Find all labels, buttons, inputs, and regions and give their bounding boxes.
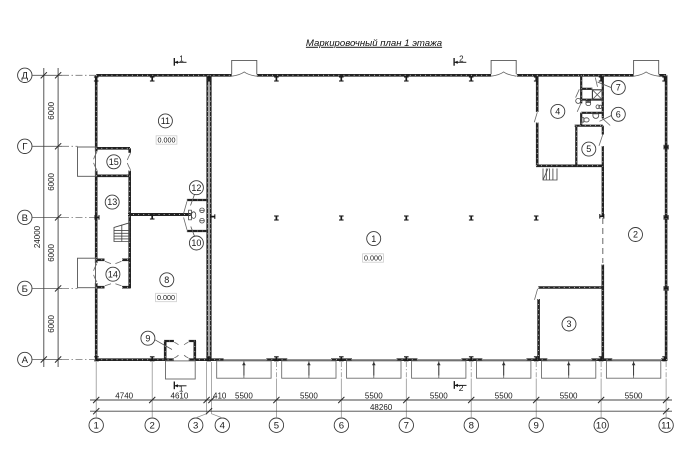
svg-text:4: 4 (555, 107, 560, 117)
svg-text:1: 1 (179, 55, 184, 64)
svg-text:5500: 5500 (235, 391, 253, 400)
svg-text:В: В (22, 213, 28, 224)
svg-text:24000: 24000 (33, 225, 42, 248)
svg-text:Д: Д (22, 71, 29, 82)
svg-text:11: 11 (661, 421, 671, 432)
svg-text:А: А (22, 355, 29, 366)
svg-text:5500: 5500 (430, 391, 448, 400)
svg-text:1: 1 (94, 421, 99, 432)
svg-text:5500: 5500 (300, 391, 318, 400)
svg-text:6000: 6000 (47, 243, 56, 261)
svg-text:48260: 48260 (370, 403, 393, 412)
svg-text:12: 12 (191, 183, 201, 193)
svg-text:5500: 5500 (560, 391, 578, 400)
svg-text:6000: 6000 (47, 172, 56, 190)
svg-text:0.000: 0.000 (157, 293, 175, 302)
svg-text:3: 3 (193, 421, 198, 432)
svg-text:14: 14 (108, 269, 118, 279)
svg-text:10: 10 (596, 421, 607, 432)
svg-text:410: 410 (213, 391, 227, 400)
svg-text:5500: 5500 (625, 391, 643, 400)
svg-text:2: 2 (633, 230, 638, 240)
svg-text:Г: Г (22, 142, 28, 153)
svg-text:5: 5 (586, 144, 591, 154)
svg-text:7: 7 (404, 421, 409, 432)
svg-text:0.000: 0.000 (158, 136, 176, 145)
svg-text:8: 8 (469, 421, 474, 432)
svg-text:4740: 4740 (115, 391, 133, 400)
svg-text:9: 9 (145, 333, 150, 343)
svg-text:15: 15 (109, 157, 119, 167)
svg-text:5500: 5500 (495, 391, 513, 400)
svg-text:1: 1 (371, 234, 376, 244)
svg-text:6000: 6000 (47, 101, 56, 119)
svg-text:0.000: 0.000 (364, 254, 382, 263)
svg-text:8: 8 (164, 275, 169, 285)
svg-text:4: 4 (220, 421, 226, 432)
svg-text:5500: 5500 (365, 391, 383, 400)
svg-text:10: 10 (191, 238, 201, 248)
svg-text:13: 13 (107, 197, 117, 207)
svg-text:2: 2 (459, 55, 464, 64)
svg-text:2: 2 (150, 421, 155, 432)
svg-text:6: 6 (339, 421, 344, 432)
svg-text:7: 7 (616, 83, 621, 93)
svg-text:5: 5 (274, 421, 279, 432)
svg-text:11: 11 (161, 116, 170, 126)
svg-text:3: 3 (566, 319, 571, 329)
svg-text:9: 9 (534, 421, 539, 432)
svg-text:Маркировочный план 1 этажа: Маркировочный план 1 этажа (306, 38, 442, 49)
svg-text:6: 6 (616, 110, 621, 120)
svg-text:6000: 6000 (47, 314, 56, 332)
svg-text:Б: Б (22, 284, 28, 295)
svg-text:2: 2 (459, 383, 464, 393)
svg-text:1: 1 (179, 383, 184, 393)
